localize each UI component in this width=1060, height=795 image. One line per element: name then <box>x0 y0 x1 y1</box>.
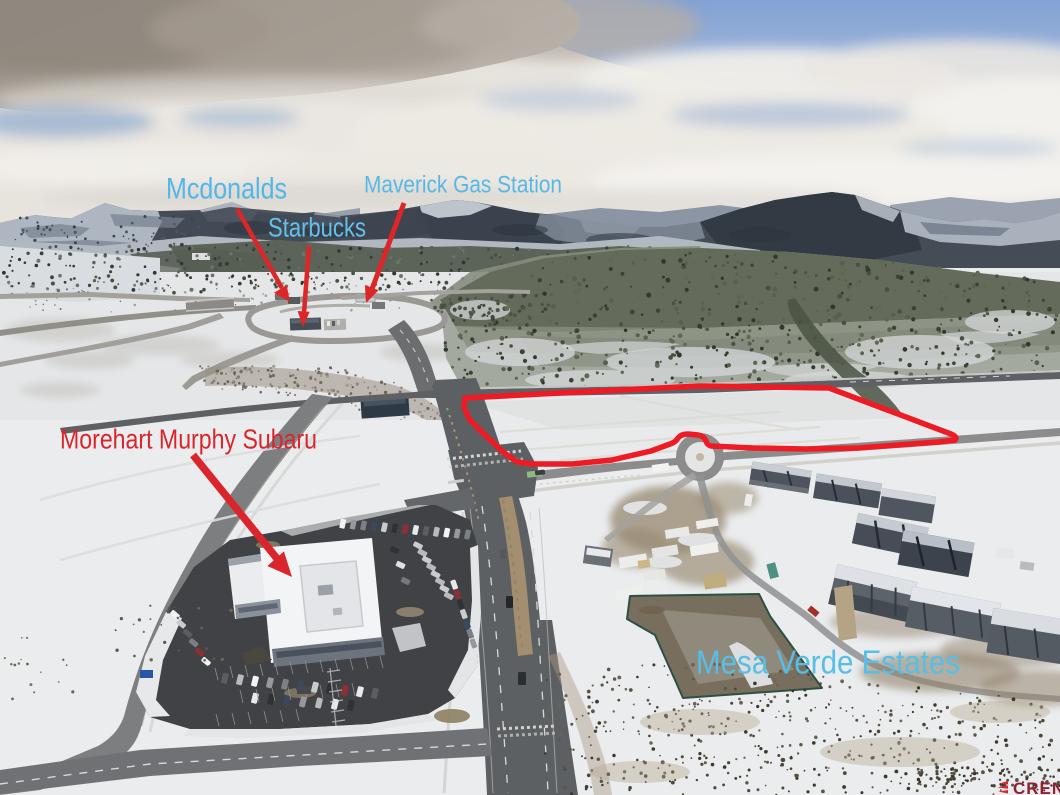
svg-text:Morehart Murphy Subaru: Morehart Murphy Subaru <box>60 424 317 455</box>
svg-text:Starbucks: Starbucks <box>268 213 366 243</box>
svg-text:Maverick Gas Station: Maverick Gas Station <box>364 172 562 199</box>
svg-text:CREN: CREN <box>1013 779 1060 795</box>
svg-text:Mcdonalds: Mcdonalds <box>166 173 287 206</box>
svg-text:Mesa Verde Estates: Mesa Verde Estates <box>696 644 960 681</box>
